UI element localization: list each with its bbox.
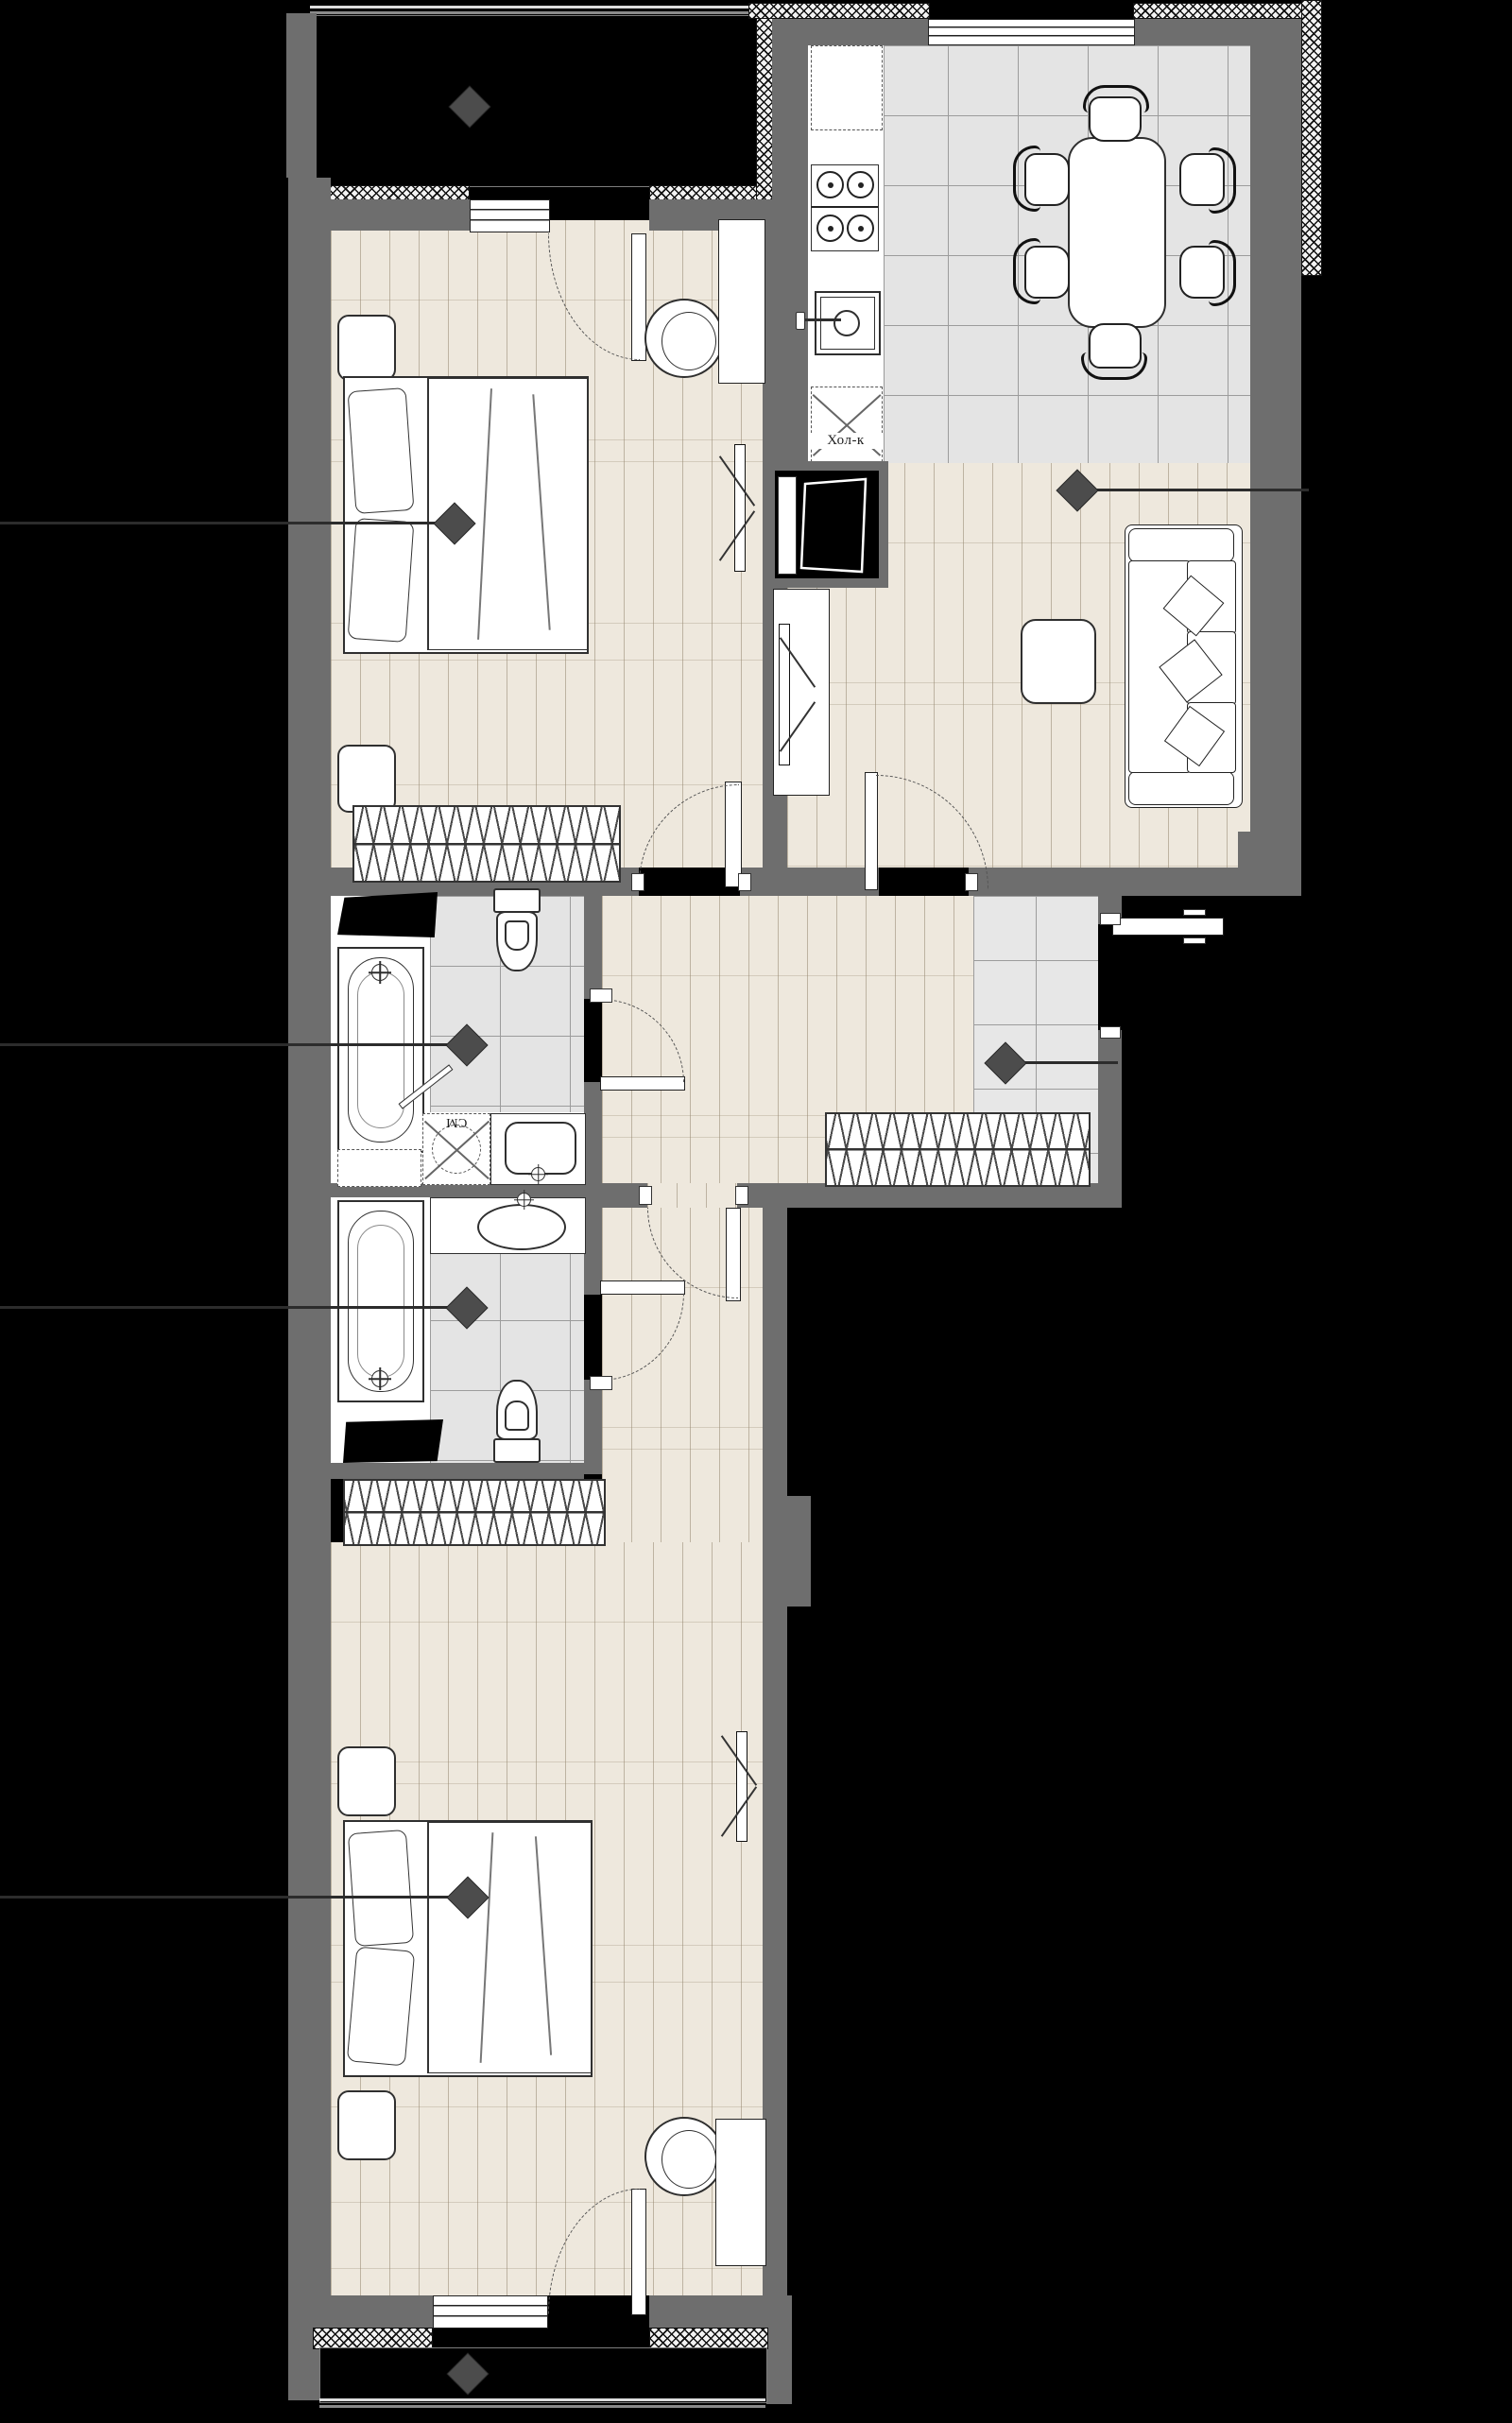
- kitchen-window: [928, 19, 1135, 45]
- chair-seat: [1024, 246, 1070, 299]
- kitchen-right-hatch: [1301, 0, 1322, 276]
- sofa-armrest-bottom: [1128, 771, 1234, 805]
- dining-chair: [1181, 244, 1234, 301]
- blanket-fold: [535, 1836, 552, 2055]
- kitchen-faucet-knob: [796, 312, 805, 330]
- bathtub-inner: [348, 957, 414, 1143]
- toilet-bowl-inner: [505, 1401, 529, 1431]
- chair-seat: [1179, 246, 1225, 299]
- kitchen-appliance-dashed: [811, 45, 883, 130]
- blanket-fold: [532, 394, 550, 629]
- sofa-armrest-top: [1128, 528, 1234, 562]
- bedroom-top-window: [470, 199, 550, 232]
- bedroom-bottom-wardrobe: [343, 1479, 606, 1546]
- desk-bedroom-bottom: [715, 2119, 766, 2266]
- bed-pillow: [348, 387, 415, 514]
- balcony-bottom-floor: [319, 2347, 767, 2403]
- toilet-bottom: [493, 1380, 541, 1463]
- armchair-bedroom-top: [644, 299, 724, 378]
- nightstand: [337, 745, 396, 813]
- bath-mat-top: [337, 892, 438, 937]
- dining-chair: [1015, 151, 1068, 208]
- chair-seat: [1179, 153, 1225, 206]
- bedroom-top-door-jamb-left: [631, 873, 644, 891]
- toilet-top: [493, 888, 541, 971]
- balcony-bottom-hatch-left: [313, 2328, 433, 2349]
- blanket-fold: [477, 388, 491, 640]
- entry-right-wall-bottom: [1098, 1030, 1122, 1208]
- armchair-bedroom-bottom: [644, 2117, 724, 2196]
- entrance-door-handle-bottom: [1183, 937, 1206, 944]
- bedroom-top-marker-leader: [0, 522, 442, 524]
- bathroom-bottom-marker-leader: [0, 1306, 455, 1309]
- bathroom-top-door-jamb-top: [590, 988, 612, 1003]
- corridor-door-jamb-left: [639, 1186, 652, 1205]
- middle-wall-c: [969, 868, 1238, 896]
- kitchen-top-hatch-right: [1133, 3, 1311, 19]
- toilet-bowl-inner: [505, 920, 529, 951]
- stove-burner: [847, 215, 874, 242]
- bedroom-bottom-window: [433, 2295, 548, 2328]
- corridor-door-threshold: [647, 1183, 737, 1208]
- balcony-top-floor: [316, 15, 758, 187]
- refrigerator-dashed: [811, 387, 883, 462]
- bed-pillow: [347, 1947, 415, 2067]
- entrance-door-leaf: [1112, 918, 1224, 936]
- nightstand: [337, 2090, 396, 2160]
- bathtub-top: [337, 947, 424, 1153]
- bathroom-right-wall-b: [584, 1082, 602, 1295]
- entrance-door-jamb-bottom: [1100, 1026, 1121, 1039]
- entrance-door-jamb-top: [1100, 913, 1121, 925]
- dining-chair: [1015, 244, 1068, 301]
- kitchen-sink-drain: [833, 310, 860, 336]
- duct-shaft-outline: [799, 476, 869, 575]
- washbasin-faucet: [531, 1167, 545, 1181]
- stove-burner: [816, 171, 844, 198]
- bedroom-top-wall-left-segment: [312, 199, 470, 231]
- coffee-table: [1021, 619, 1096, 704]
- living-room-marker-leader: [1090, 489, 1309, 491]
- tv-bedroom-top: [734, 444, 746, 572]
- toilet-tank: [493, 1438, 541, 1463]
- entry-coat-rack: [825, 1112, 1091, 1187]
- living-room-door-jamb-right: [965, 873, 978, 891]
- tv-bedroom-bottom: [736, 1731, 747, 1842]
- middle-wall-b: [740, 868, 879, 896]
- chair-seat: [1089, 323, 1142, 369]
- bed-pillow: [348, 1830, 414, 1947]
- bathtub-faucet: [371, 964, 388, 981]
- balcony-bottom-railing: [319, 2398, 765, 2401]
- stove-burner: [816, 215, 844, 242]
- entrance-door-handle-top: [1183, 909, 1206, 916]
- bathroom-bottom-door-jamb-bottom: [590, 1376, 612, 1390]
- stove: [811, 164, 879, 251]
- washbasin-bottom: [477, 1204, 566, 1250]
- bathroom-right-wall-c: [584, 1380, 602, 1474]
- balcony-top-left-wall: [286, 13, 317, 178]
- bed-blanket: [427, 1822, 592, 2073]
- bed-pillow: [348, 518, 415, 643]
- nightstand: [337, 1746, 396, 1816]
- bath-mat-bottom: [343, 1419, 443, 1463]
- bedroom-top-door-jamb-right: [738, 873, 751, 891]
- floor-plan: Хол-к СМ: [0, 0, 1512, 2423]
- kitchen-top-wall-left: [772, 15, 928, 45]
- dining-table: [1068, 137, 1166, 328]
- washing-machine-label: СМ: [423, 1114, 490, 1129]
- dining-chair: [1181, 151, 1234, 208]
- balcony-top-railing: [310, 6, 760, 9]
- dining-chair: [1087, 325, 1143, 378]
- toilet-bowl: [496, 911, 538, 971]
- corridor-door-jamb-right: [735, 1186, 748, 1205]
- washbasin-top: [490, 1113, 586, 1185]
- toilet-tank: [493, 888, 541, 913]
- chair-seat: [1024, 153, 1070, 206]
- bathtub-inner: [348, 1211, 414, 1392]
- dining-chair: [1087, 87, 1143, 140]
- bedroom-bottom-wall-right: [649, 2295, 766, 2328]
- bathroom-right-wall-a: [584, 896, 602, 999]
- kitchen-left-wall: [772, 15, 808, 463]
- kitchen-top-hatch-left: [748, 3, 930, 19]
- balcony-bottom-hatch-right: [649, 2328, 768, 2349]
- stove-divider: [812, 206, 878, 208]
- nightstand: [337, 315, 396, 381]
- entry-right-block: [1238, 832, 1301, 896]
- washing-machine: СМ: [422, 1113, 490, 1185]
- bath-cabinet-dashed: [337, 1149, 421, 1187]
- washbasin-bottom-faucet: [517, 1193, 531, 1207]
- bathroom-top-marker-leader: [0, 1043, 455, 1046]
- kitchen-sink: [815, 291, 881, 355]
- bathtub-faucet: [371, 1370, 388, 1387]
- bedroom-bottom-marker-leader: [0, 1896, 455, 1899]
- duct-shaft-panel: [778, 476, 797, 575]
- left-exterior-wall: [288, 178, 331, 2400]
- chair-seat: [1089, 96, 1142, 142]
- right-exterior-wall: [1250, 15, 1301, 896]
- corridor-right-wall-pilaster: [787, 1496, 811, 1607]
- stove-burner: [847, 171, 874, 198]
- toilet-bowl: [496, 1380, 538, 1440]
- balcony-top-railing-inner: [310, 11, 760, 14]
- bedroom-top-wardrobe: [352, 805, 621, 883]
- bathtub-bottom: [337, 1200, 424, 1402]
- kitchen-faucet-lever: [799, 318, 841, 321]
- bathroom-bottom-wall: [331, 1463, 584, 1479]
- balcony-bottom-railing-inner: [319, 2405, 765, 2408]
- desk-bedroom-top: [718, 219, 765, 384]
- balcony-bottom-right-wall: [766, 2295, 792, 2404]
- refrigerator-label: Хол-к: [809, 433, 883, 449]
- blanket-fold: [480, 1832, 493, 2063]
- washing-machine-drum: [432, 1125, 481, 1174]
- bedroom-bottom-wall-left: [331, 2295, 433, 2328]
- entry-hall-marker-leader: [1018, 1061, 1118, 1064]
